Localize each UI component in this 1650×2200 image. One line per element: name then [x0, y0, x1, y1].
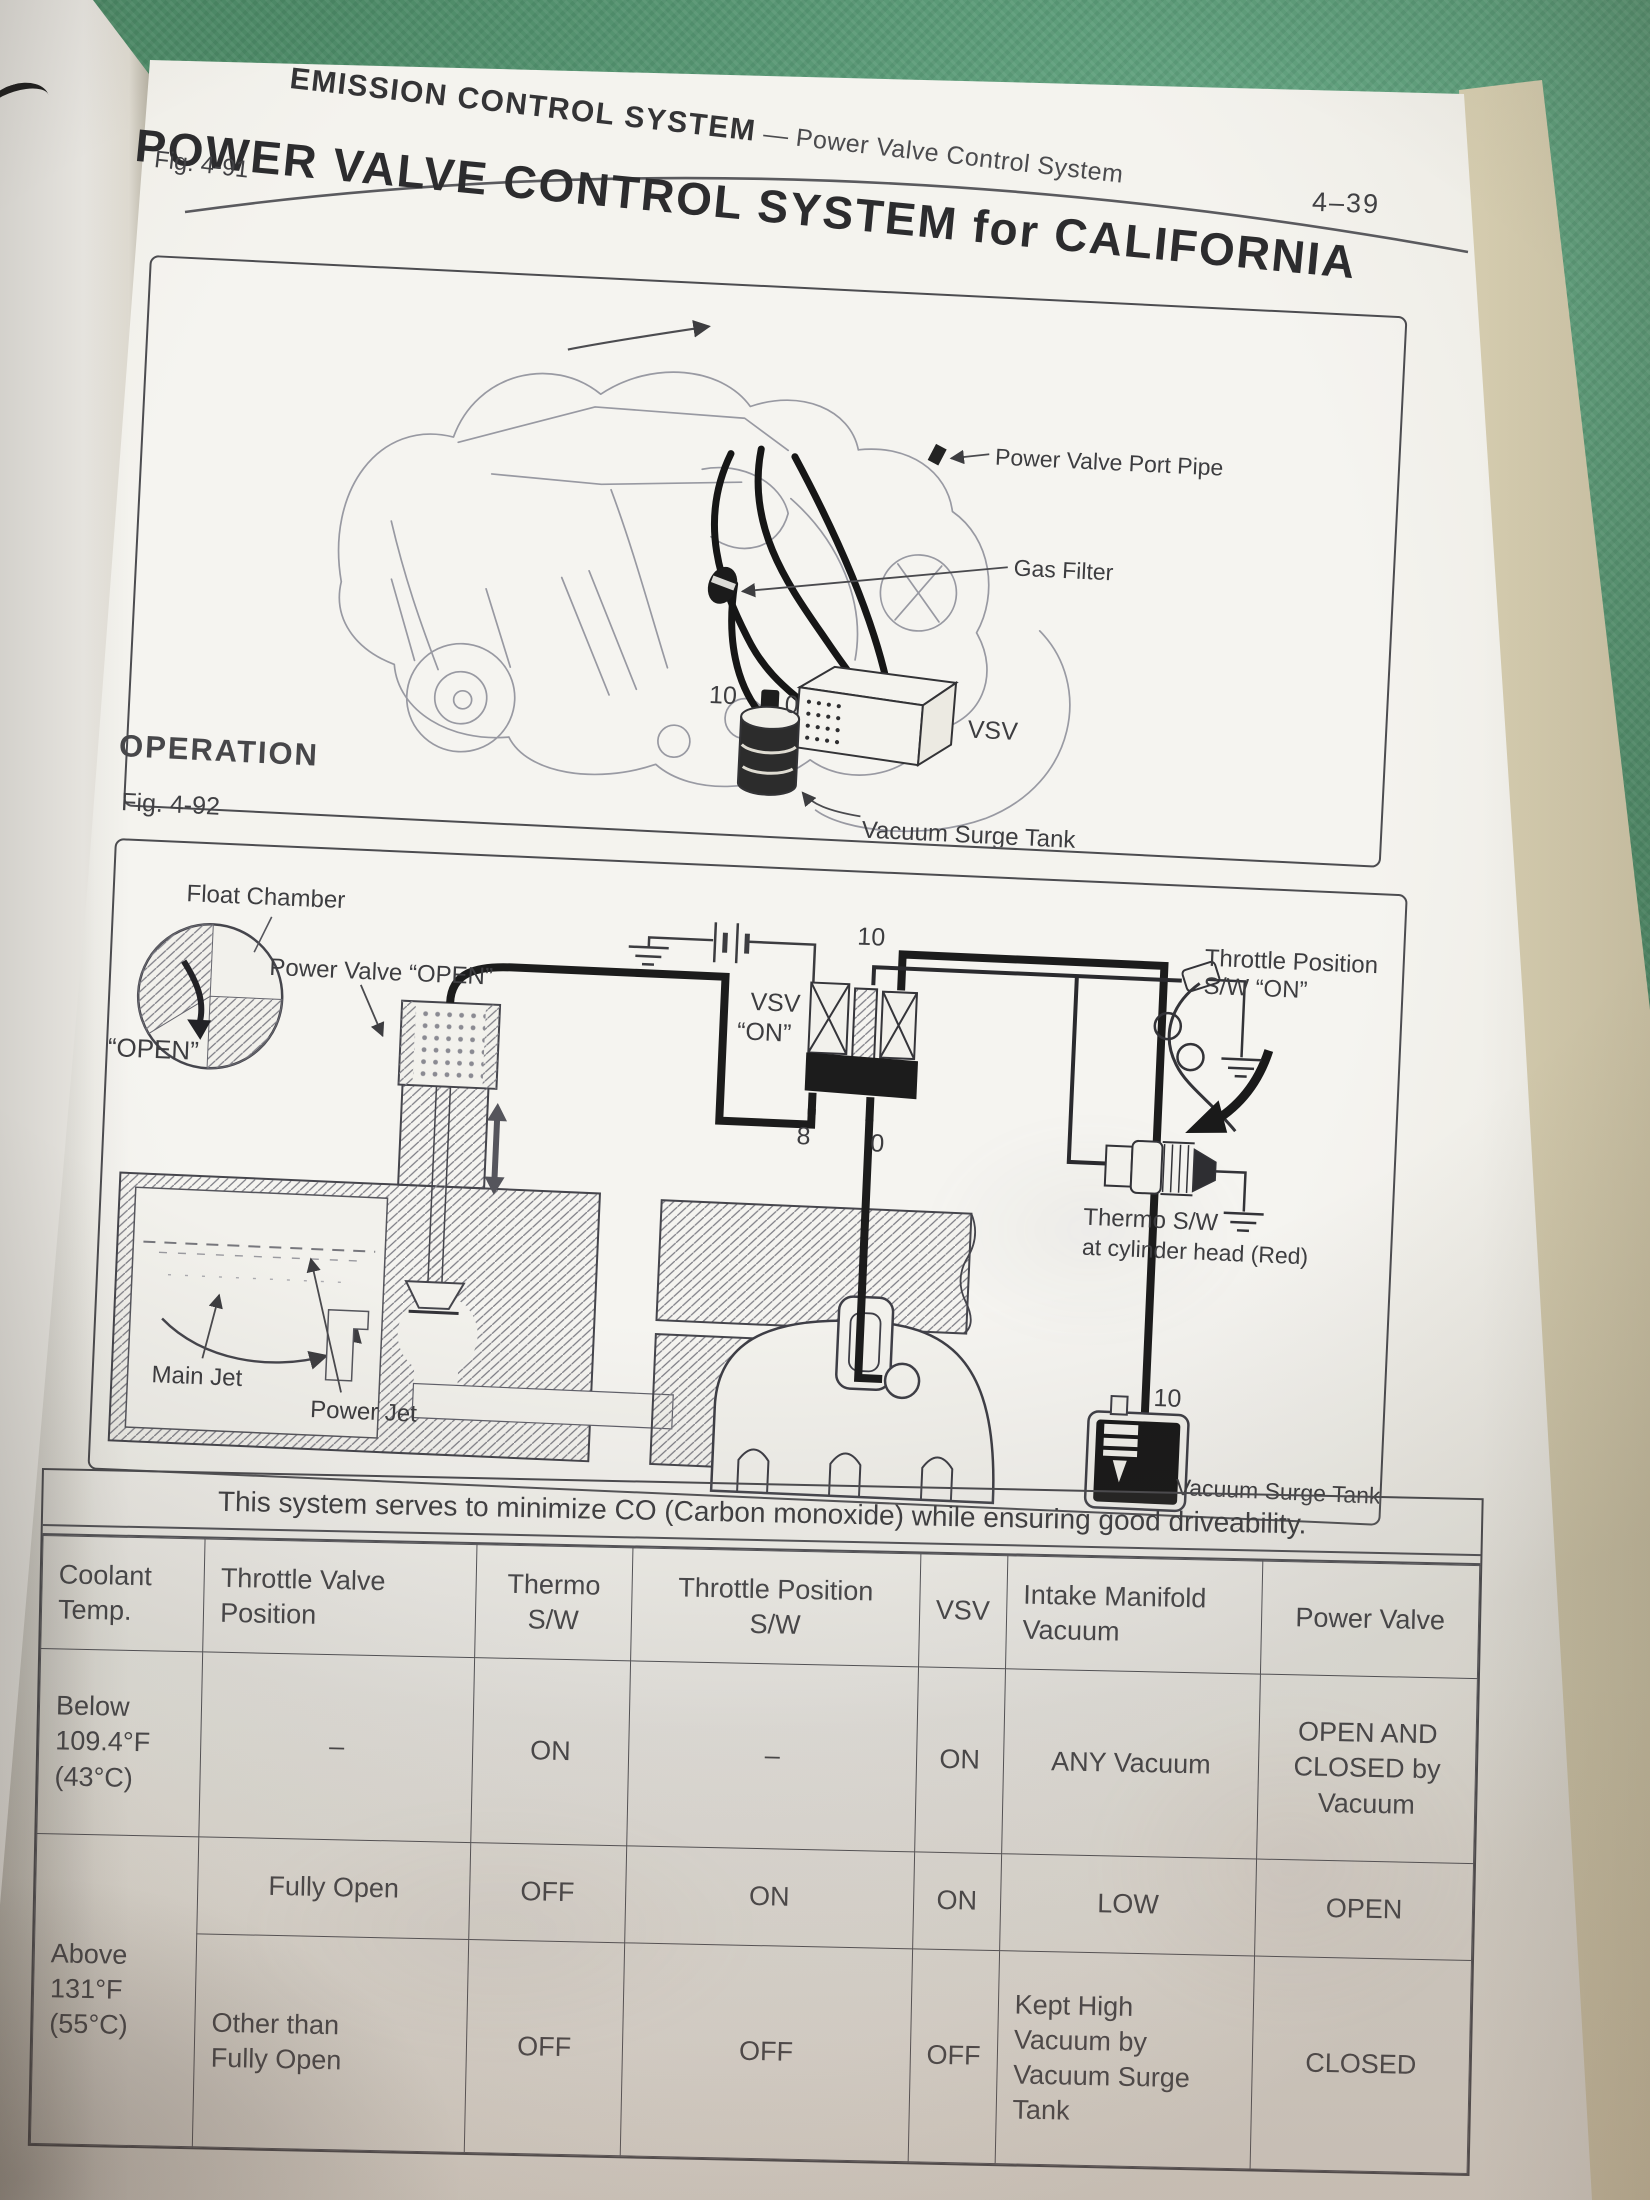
label-float-chamber: Float Chamber: [186, 880, 346, 914]
cell-power-valve: OPEN AND CLOSED by Vacuum: [1257, 1674, 1478, 1864]
gas-filter-part: [702, 562, 743, 609]
label-gas-filter: Gas Filter: [1013, 555, 1114, 586]
col-thermo-sw: Thermo S/W: [474, 1545, 632, 1661]
label-thermo-2: at cylinder head (Red): [1082, 1234, 1309, 1270]
cell-power-valve: CLOSED: [1250, 1956, 1471, 2173]
operation-table: This system serves to minimize CO (Carbo…: [28, 1468, 1484, 2176]
label-thermo-1: Thermo S/W: [1083, 1204, 1219, 1237]
col-vsv: VSV: [918, 1554, 1007, 1669]
figure-4-92: Float Chamber “OPEN” Power Valve “OPEN” …: [87, 838, 1407, 1526]
fig2-label: Fig. 4-92: [121, 788, 221, 822]
cell-throttle-position: Other than Fully Open: [192, 1934, 468, 2153]
table-row-below-temp: Below 109.4°F (43°C) – ON – ON ANY Vacuu…: [37, 1649, 1478, 1864]
label-vsv-on-2: “ON”: [737, 1017, 792, 1047]
spec-table: Coolant Temp. Throttle Valve Position Th…: [30, 1535, 1480, 2174]
cell-coolant-temp: Above 131°F (55°C): [30, 1833, 199, 2146]
vsv-solenoid: [803, 982, 921, 1123]
col-coolant-temp: Coolant Temp.: [41, 1536, 205, 1652]
cell-throttle-position-sw: –: [626, 1661, 918, 1852]
label-port-8: 8: [796, 1122, 811, 1151]
cell-vsv: ON: [914, 1667, 1005, 1854]
port-pipe-fitting: [928, 444, 947, 466]
figure-4-91: Power Valve Port Pipe Gas Filter VSV 10 …: [123, 255, 1407, 868]
label-port-0: 0: [870, 1129, 885, 1158]
cell-throttle-position: Fully Open: [197, 1837, 471, 1940]
label-hose-0: 0: [784, 691, 799, 720]
cell-vacuum: LOW: [999, 1854, 1256, 1956]
col-intake-manifold-vacuum: Intake Manifold Vacuum: [1005, 1556, 1263, 1674]
cell-vacuum: ANY Vacuum: [1001, 1669, 1260, 1859]
cell-vsv: ON: [912, 1852, 1001, 1951]
table-row-above-temp-other: Other than Fully Open OFF OFF OFF Kept H…: [30, 1930, 1471, 2173]
cell-throttle-position-sw: ON: [624, 1846, 914, 1949]
col-power-valve: Power Valve: [1261, 1561, 1480, 1679]
label-power-jet: Power Jet: [310, 1396, 418, 1428]
label-main-jet: Main Jet: [151, 1361, 243, 1392]
label-power-valve-open: Power Valve “OPEN”: [269, 954, 494, 991]
manifold-port: [884, 1363, 919, 1398]
cell-thermo-sw: OFF: [468, 1843, 626, 1943]
label-vsv: VSV: [967, 716, 1019, 746]
cell-thermo-sw: ON: [470, 1658, 630, 1846]
cell-vacuum: Kept High Vacuum by Vacuum Surge Tank: [995, 1951, 1255, 2169]
label-hose-10: 10: [708, 681, 737, 710]
engine-line-art: [326, 356, 1085, 839]
label-vsv-on-1: VSV: [750, 988, 802, 1018]
engine-top-arrow: [568, 320, 709, 357]
cell-thermo-sw: OFF: [464, 1940, 624, 2156]
cell-throttle-position-sw: OFF: [620, 1943, 912, 2162]
cell-vsv: OFF: [908, 1949, 1000, 2164]
cell-coolant-temp: Below 109.4°F (43°C): [37, 1649, 203, 1837]
col-throttle-position-sw: Throttle Position S/W: [630, 1548, 920, 1667]
page-number: 4–39: [1311, 187, 1380, 220]
label-throttle-sw-2: S/W “ON”: [1203, 973, 1308, 1005]
label-port-10: 10: [857, 922, 886, 951]
label-open: “OPEN”: [107, 1032, 199, 1066]
cell-power-valve: OPEN: [1255, 1859, 1474, 1961]
cell-throttle-position: –: [199, 1652, 474, 1843]
label-power-valve-port-pipe: Power Valve Port Pipe: [995, 444, 1224, 481]
label-tank-port-10: 10: [1153, 1384, 1182, 1413]
col-throttle-valve-position: Throttle Valve Position: [203, 1539, 477, 1658]
